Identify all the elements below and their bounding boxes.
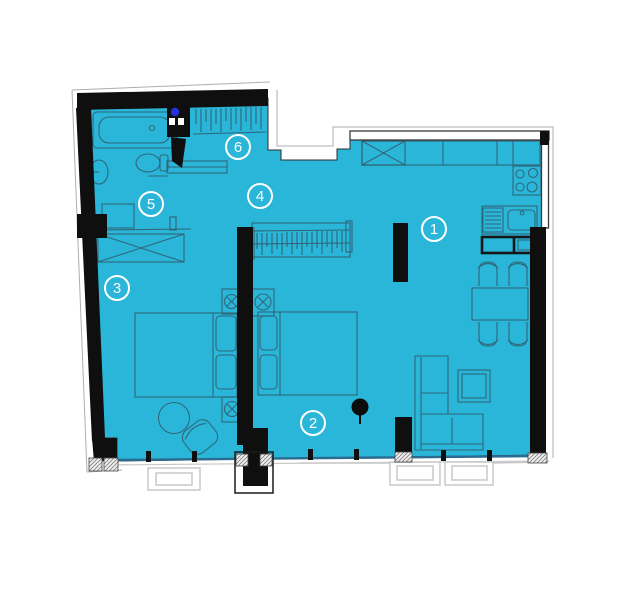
wall-stub-kitchen	[393, 223, 408, 282]
room-number: 4	[256, 188, 264, 205]
room-number: 6	[234, 139, 242, 156]
floor-plan-drawing	[0, 0, 640, 600]
room-marker-5: 5	[138, 191, 164, 217]
wall-right	[530, 227, 546, 455]
balcony-left-inner	[156, 473, 192, 485]
room-number: 2	[309, 415, 317, 432]
shaft-vent-hole	[169, 118, 175, 125]
room-marker-2: 2	[300, 410, 326, 436]
room-marker-3: 3	[104, 275, 130, 301]
balcony-right-2-inner	[452, 466, 487, 480]
window-top	[350, 131, 549, 140]
apartment-floor-area	[90, 98, 543, 461]
wall-corner-topright	[540, 131, 549, 145]
balcony-right-1-inner	[397, 466, 433, 480]
shaft-vent-hole	[178, 118, 184, 125]
room-marker-1: 1	[421, 216, 447, 242]
floor-plan-canvas: 1 2 3 4 5 6	[0, 0, 640, 600]
room-marker-6: 6	[225, 134, 251, 160]
room-number: 5	[147, 196, 155, 213]
window-right	[542, 140, 549, 228]
balconies	[148, 462, 545, 490]
bar-wall-join	[530, 236, 546, 254]
room-number: 1	[430, 221, 438, 238]
wall-stub-left	[77, 214, 107, 238]
wall-middle	[237, 227, 253, 445]
wall-stub-living	[395, 417, 412, 453]
blue-marker-dot	[171, 108, 179, 116]
room-marker-4: 4	[247, 183, 273, 209]
room-number: 3	[113, 280, 121, 297]
